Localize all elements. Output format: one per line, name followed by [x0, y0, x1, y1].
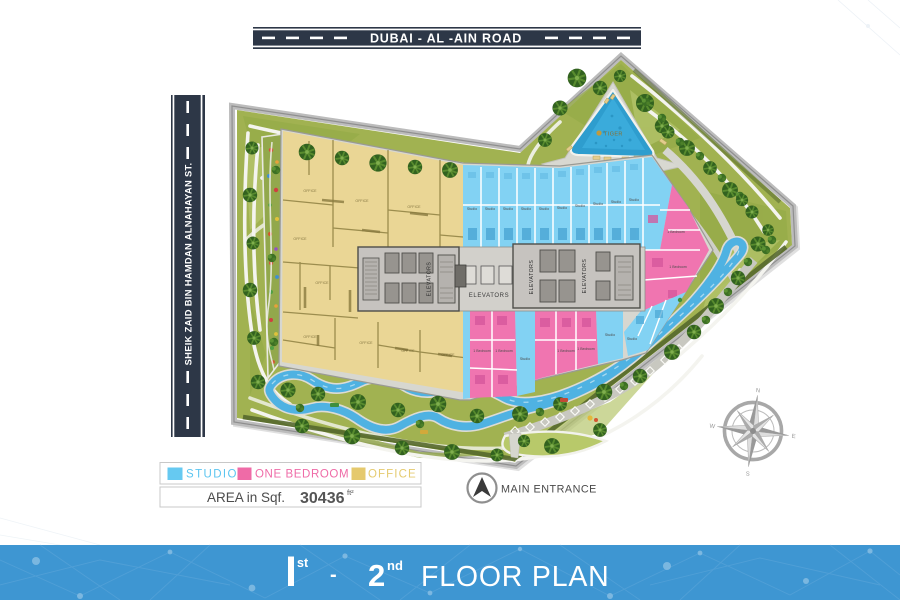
svg-text:Studio: Studio [539, 207, 549, 211]
svg-text:1 Bedroom: 1 Bedroom [667, 230, 685, 234]
svg-text:1 Bedroom: 1 Bedroom [557, 349, 575, 353]
svg-text:ELEVATORS: ELEVATORS [529, 260, 535, 295]
svg-text:AREA in Sqf.: AREA in Sqf. [207, 490, 285, 505]
svg-text:OFFICE: OFFICE [359, 341, 373, 345]
svg-text:OFFICE: OFFICE [401, 349, 415, 353]
svg-text:OFFICE: OFFICE [303, 335, 317, 339]
svg-text:TIGER: TIGER [604, 132, 623, 138]
svg-text:Studio: Studio [605, 333, 615, 337]
svg-text:OFFICE: OFFICE [303, 189, 317, 193]
svg-text:Studio: Studio [575, 204, 585, 208]
svg-text:OFFICE: OFFICE [315, 281, 329, 285]
svg-text:ELEVATORS: ELEVATORS [427, 262, 433, 297]
svg-text:ONE BEDROOM: ONE BEDROOM [255, 469, 349, 481]
svg-text:Studio: Studio [503, 207, 513, 211]
svg-text:E: E [791, 434, 796, 440]
svg-text:N: N [755, 388, 760, 394]
svg-text:1 Bedroom: 1 Bedroom [577, 347, 595, 351]
svg-text:ELEVATORS: ELEVATORS [469, 293, 509, 299]
svg-text:nd: nd [387, 558, 403, 573]
svg-text:Studio: Studio [467, 207, 477, 211]
svg-text:Studio: Studio [629, 198, 639, 202]
svg-text:STUDIO: STUDIO [186, 469, 238, 481]
svg-text:1 Bedroom: 1 Bedroom [473, 349, 491, 353]
svg-text:SHEIK ZAID BIN HAMDAN ALNAHAY: SHEIK ZAID BIN HAMDAN ALNAHAYAN ST. [183, 163, 193, 366]
svg-text:ELEVATORS: ELEVATORS [582, 259, 588, 294]
svg-text:-: - [330, 564, 337, 586]
svg-text:OFFICE: OFFICE [407, 205, 421, 209]
svg-text:Studio: Studio [521, 207, 531, 211]
svg-text:1 Bedroom: 1 Bedroom [669, 265, 687, 269]
svg-text:W: W [709, 424, 716, 431]
svg-text:Studio: Studio [520, 357, 530, 361]
svg-text:Studio: Studio [611, 200, 621, 204]
svg-text:30436: 30436 [300, 490, 345, 507]
svg-text:OFFICE: OFFICE [441, 353, 455, 357]
svg-text:st: st [297, 556, 309, 570]
svg-text:Studio: Studio [485, 207, 495, 211]
svg-text:MAIN ENTRANCE: MAIN ENTRANCE [501, 484, 597, 496]
svg-text:OFFICE: OFFICE [293, 237, 307, 241]
svg-text:Studio: Studio [593, 202, 603, 206]
svg-text:2: 2 [368, 558, 385, 593]
svg-text:Studio: Studio [627, 337, 637, 341]
svg-text:Studio: Studio [557, 206, 567, 210]
svg-text:ft²: ft² [347, 488, 354, 497]
svg-text:1 Bedroom: 1 Bedroom [495, 349, 513, 353]
svg-text:FLOOR PLAN: FLOOR PLAN [421, 561, 610, 593]
svg-text:S: S [745, 471, 750, 477]
svg-text:DUBAI - AL -AIN ROAD: DUBAI - AL -AIN ROAD [370, 32, 522, 46]
svg-text:OFFICE: OFFICE [355, 199, 369, 203]
svg-text:OFFICE: OFFICE [368, 469, 417, 481]
